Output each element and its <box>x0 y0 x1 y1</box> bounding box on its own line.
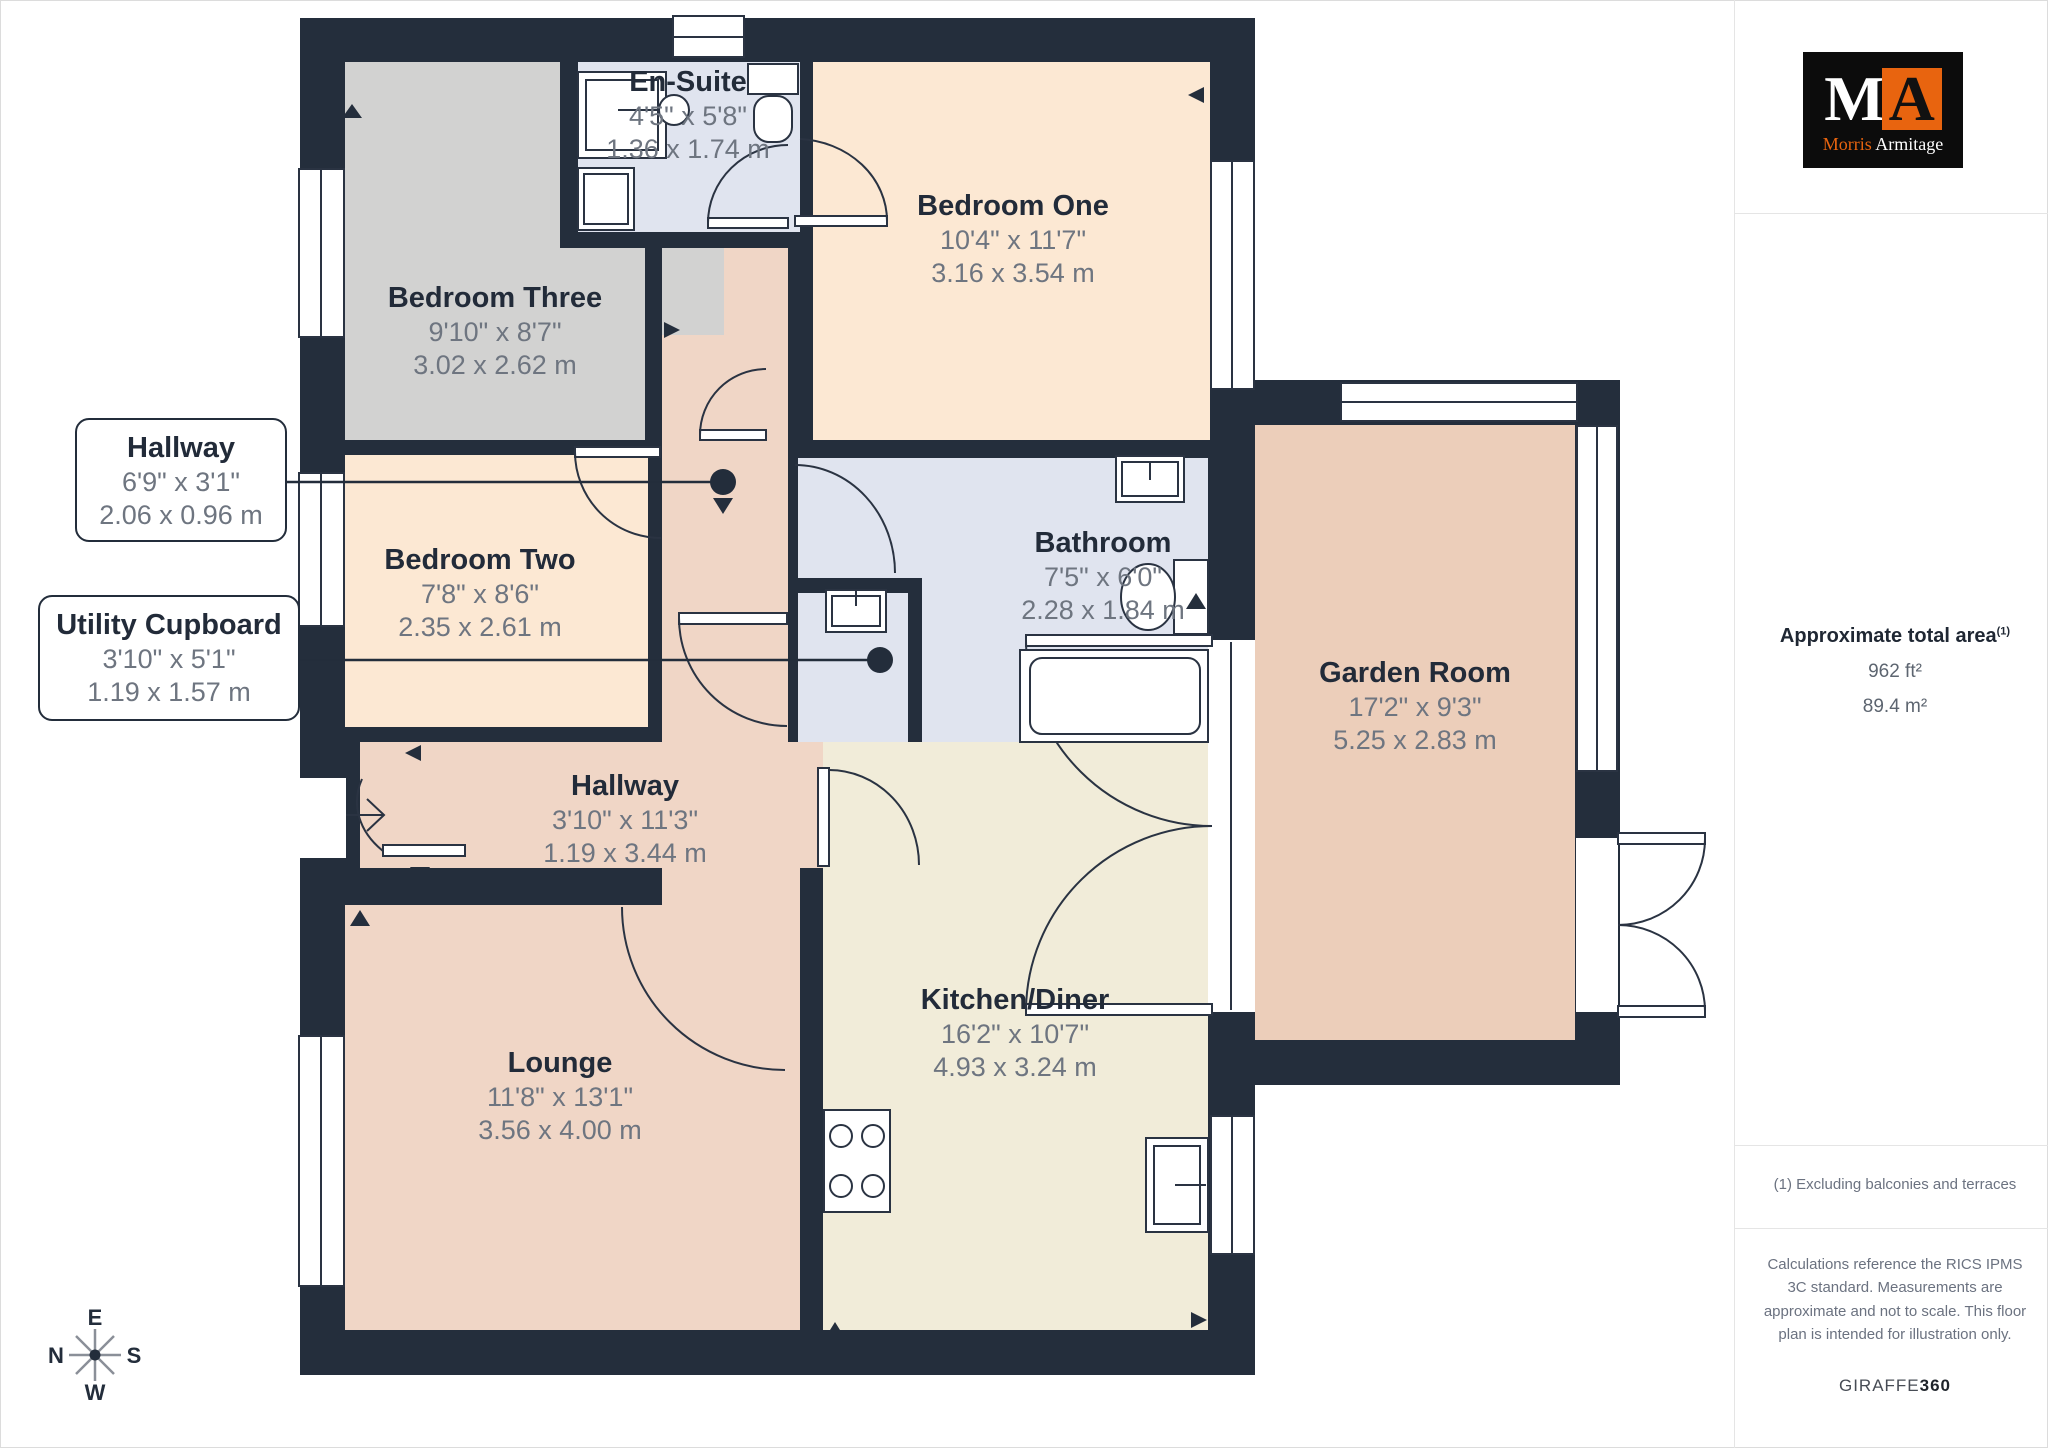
room-name: Lounge <box>410 1045 710 1081</box>
callout-dim-imperial: 6'9" x 3'1" <box>85 466 277 499</box>
room-dim-imperial: 10'4" x 11'7" <box>863 224 1163 257</box>
brand-second: 360 <box>1920 1376 1951 1395</box>
total-area-heading: Approximate total area(1) <box>1742 625 2048 648</box>
room-label-bedroom-one: Bedroom One 10'4" x 11'7" 3.16 x 3.54 m <box>863 188 1163 290</box>
sidebar-divider <box>1734 0 1735 1448</box>
callout-utility-cupboard: Utility Cupboard 3'10" x 5'1" 1.19 x 1.5… <box>38 595 300 721</box>
room-dim-metric: 4.93 x 3.24 m <box>865 1051 1165 1084</box>
compass-east: E <box>88 1305 103 1331</box>
callout-dim-metric: 2.06 x 0.96 m <box>85 499 277 532</box>
room-dim-metric: 1.19 x 3.44 m <box>475 837 775 870</box>
room-label-lounge: Lounge 11'8" x 13'1" 3.56 x 4.00 m <box>410 1045 710 1147</box>
room-label-kitchen-diner: Kitchen/Diner 16'2" x 10'7" 4.93 x 3.24 … <box>865 982 1165 1084</box>
logo-letter-m: M <box>1824 68 1884 130</box>
sidebar-divider-top <box>1734 213 2048 214</box>
room-name: Bedroom One <box>863 188 1163 224</box>
room-dim-imperial: 7'8" x 8'6" <box>330 578 630 611</box>
cabinet-icon <box>578 168 634 230</box>
room-dim-metric: 3.16 x 3.54 m <box>863 257 1163 290</box>
room-name: Kitchen/Diner <box>865 982 1165 1018</box>
room-dim-imperial: 7'5" x 6'0" <box>953 561 1253 594</box>
room-dim-metric: 2.28 x 1.84 m <box>953 594 1253 627</box>
utility-sink-icon <box>826 590 886 632</box>
room-dim-imperial: 11'8" x 13'1" <box>410 1081 710 1114</box>
callout-hallway: Hallway 6'9" x 3'1" 2.06 x 0.96 m <box>75 418 287 542</box>
callout-dim-imperial: 3'10" x 5'1" <box>48 643 290 676</box>
compass-south: S <box>127 1343 142 1369</box>
total-area-heading-text: Approximate total area <box>1780 625 1997 647</box>
room-dim-imperial: 16'2" x 10'7" <box>865 1018 1165 1051</box>
callout-name: Hallway <box>85 430 277 466</box>
room-label-bedroom-two: Bedroom Two 7'8" x 8'6" 2.35 x 2.61 m <box>330 542 630 644</box>
callout-name: Utility Cupboard <box>48 607 290 643</box>
area-footnote: (1) Excluding balconies and terraces <box>1742 1176 2048 1193</box>
compass-north: N <box>48 1343 64 1369</box>
floorplan-page: En-Suite 4'5" x 5'8" 1.36 x 1.74 m Bedro… <box>0 0 2048 1448</box>
sidebar-divider-note-top <box>1734 1145 2048 1146</box>
room-dim-metric: 3.02 x 2.62 m <box>345 349 645 382</box>
room-dim-metric: 5.25 x 2.83 m <box>1265 724 1565 757</box>
room-name: Hallway <box>475 768 775 804</box>
hob-icon <box>824 1110 890 1212</box>
logo-name-last: Armitage <box>1875 134 1943 154</box>
compass-west: W <box>85 1380 106 1406</box>
kitchen-sink-icon <box>1146 1138 1208 1232</box>
entrance-arrow-icon <box>346 799 384 831</box>
room-dim-imperial: 9'10" x 8'7" <box>345 316 645 349</box>
room-label-garden-room: Garden Room 17'2" x 9'3" 5.25 x 2.83 m <box>1265 655 1565 757</box>
total-area-imperial: 962 ft² <box>1742 661 2048 683</box>
logo-name-first: Morris <box>1823 134 1872 154</box>
room-dim-imperial: 4'5" x 5'8" <box>588 100 788 133</box>
agency-logo: MA Morris Armitage <box>1803 52 1963 168</box>
agency-logo-name: Morris Armitage <box>1823 135 1944 153</box>
room-label-bedroom-three: Bedroom Three 9'10" x 8'7" 3.02 x 2.62 m <box>345 280 645 382</box>
sidebar-divider-note-bottom <box>1734 1228 2048 1229</box>
bath-icon <box>1020 650 1208 742</box>
bathroom-basin-icon <box>1116 456 1184 502</box>
room-name: En-Suite <box>588 64 788 100</box>
room-name: Bathroom <box>953 525 1253 561</box>
agency-logo-monogram: MA <box>1824 68 1942 130</box>
compass-icon <box>69 1329 121 1381</box>
room-dim-metric: 2.35 x 2.61 m <box>330 611 630 644</box>
room-name: Bedroom Three <box>345 280 645 316</box>
total-area-superscript: (1) <box>1997 625 2010 637</box>
room-name: Garden Room <box>1265 655 1565 691</box>
disclaimer-text: Calculations reference the RICS IPMS 3C … <box>1760 1253 2030 1346</box>
total-area-block: Approximate total area(1) 962 ft² 89.4 m… <box>1742 625 2048 718</box>
logo-letter-a: A <box>1882 68 1942 130</box>
room-dim-imperial: 17'2" x 9'3" <box>1265 691 1565 724</box>
room-dim-imperial: 3'10" x 11'3" <box>475 804 775 837</box>
room-dim-metric: 1.36 x 1.74 m <box>588 133 788 166</box>
total-area-metric: 89.4 m² <box>1742 696 2048 718</box>
room-label-ensuite: En-Suite 4'5" x 5'8" 1.36 x 1.74 m <box>588 64 788 166</box>
giraffe360-brand: GIRAFFE360 <box>1742 1376 2048 1396</box>
room-label-bathroom: Bathroom 7'5" x 6'0" 2.28 x 1.84 m <box>953 525 1253 627</box>
room-label-hallway: Hallway 3'10" x 11'3" 1.19 x 3.44 m <box>475 768 775 870</box>
brand-first: GIRAFFE <box>1839 1376 1920 1395</box>
callout-dim-metric: 1.19 x 1.57 m <box>48 676 290 709</box>
room-dim-metric: 3.56 x 4.00 m <box>410 1114 710 1147</box>
room-name: Bedroom Two <box>330 542 630 578</box>
